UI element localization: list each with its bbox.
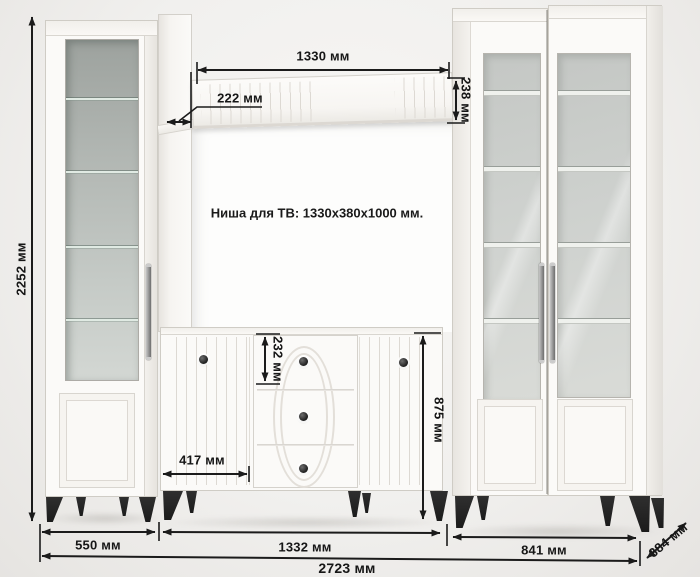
dim-label-tv-stand-width: 1332 мм xyxy=(278,540,331,555)
dim-label-right-cabinets-width: 841 мм xyxy=(521,543,567,558)
furniture-wall-unit-diagram: 2252 мм 1330 мм 222 мм 238 мм 232 мм 417… xyxy=(0,0,700,577)
dim-line-right-cabinets-width xyxy=(453,537,636,538)
dim-label-shelf-length: 1330 мм xyxy=(296,49,349,64)
dim-label-commode-door-width: 417 мм xyxy=(179,453,225,468)
dim-label-shelf-face-height: 238 мм xyxy=(459,77,474,123)
dim-line-tv-stand-width xyxy=(163,532,440,533)
dim-label-total-width: 2723 мм xyxy=(318,560,375,576)
dimension-lines xyxy=(0,0,700,577)
dim-label-left-cabinet-width: 550 мм xyxy=(75,538,121,553)
niche-size-label: Ниша для ТВ: 1330x380x1000 мм. xyxy=(211,206,423,221)
dim-label-top-drawer-height: 232 мм xyxy=(271,336,286,382)
dim-label-total-height: 2252 мм xyxy=(14,242,29,295)
dim-label-shelf-depth: 222 мм xyxy=(217,91,263,106)
dim-label-commode-height: 875 мм xyxy=(432,397,447,443)
